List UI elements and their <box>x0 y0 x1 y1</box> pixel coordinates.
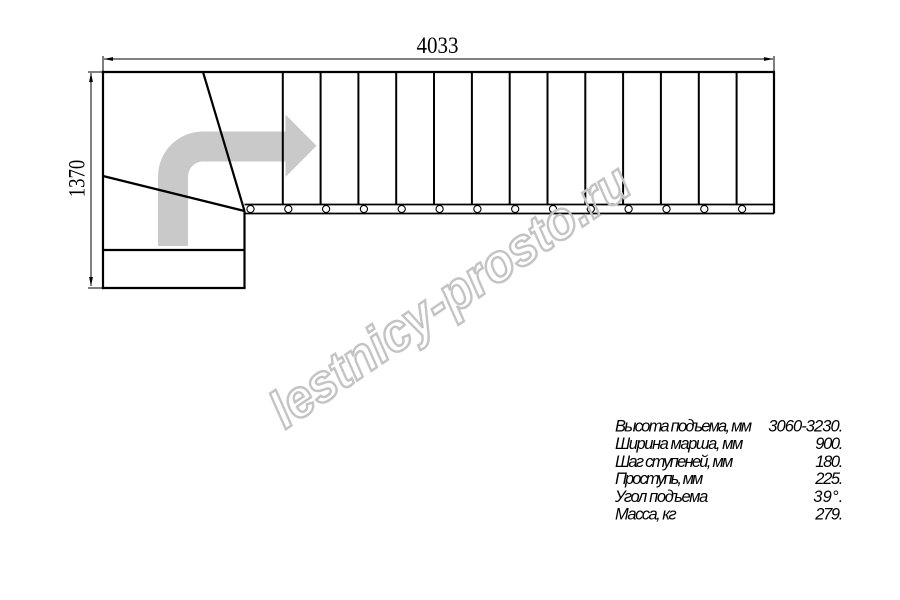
svg-text:Масса, кг: Масса, кг <box>615 506 677 524</box>
svg-text:900.: 900. <box>815 435 843 453</box>
svg-text:Шаг ступеней, мм: Шаг ступеней, мм <box>615 453 733 471</box>
svg-text:Высота подъема, мм: Высота подъема, мм <box>615 418 752 436</box>
svg-text:Ширина марша, мм: Ширина марша, мм <box>615 435 743 453</box>
svg-text:225.: 225. <box>814 470 843 488</box>
svg-text:279.: 279. <box>814 506 843 524</box>
svg-text:4033: 4033 <box>417 33 459 58</box>
svg-text:3060-3230.: 3060-3230. <box>768 418 843 436</box>
svg-text:Проступь, мм: Проступь, мм <box>615 470 703 488</box>
svg-text:39°.: 39°. <box>813 488 843 506</box>
svg-text:Угол подъема: Угол подъема <box>614 488 708 506</box>
svg-text:1370: 1370 <box>65 160 90 198</box>
svg-text:180.: 180. <box>815 453 843 471</box>
